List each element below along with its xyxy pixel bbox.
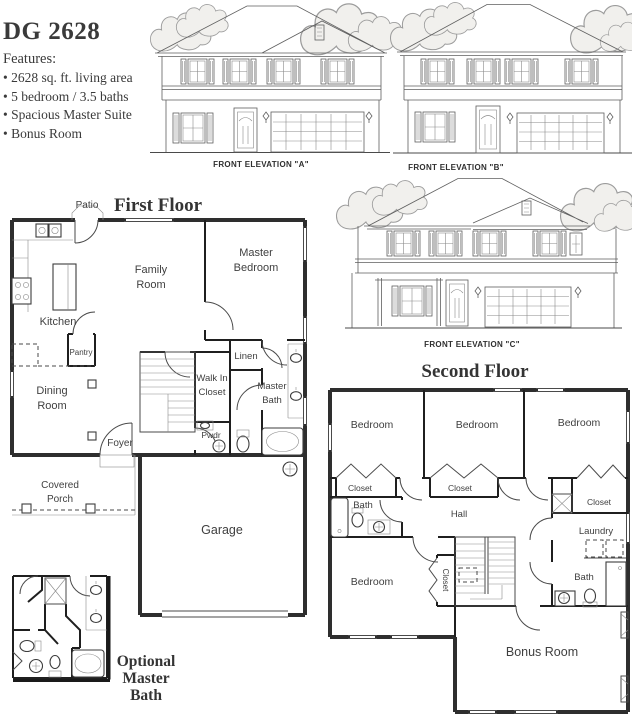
toilet xyxy=(237,430,249,452)
caption-line: Master xyxy=(122,670,169,687)
kitchen-island xyxy=(53,264,76,310)
bath-label: Bath xyxy=(353,500,373,511)
front-elevation-a: FRONT ELEVATION "A" xyxy=(150,4,403,169)
patio-label: Patio xyxy=(76,200,99,211)
interior-walls xyxy=(13,576,80,678)
bedroom-label: Bedroom xyxy=(351,576,394,588)
foyer-label: Foyer xyxy=(107,438,133,449)
first-floor-labels: Patio Family Room Master Bedroom Kitchen… xyxy=(36,200,286,537)
second-floor-plan: Bedroom Bedroom Bedroom Bedroom Closet C… xyxy=(329,389,630,714)
master-bath-label: Master xyxy=(257,381,286,392)
hall-label: Hall xyxy=(451,509,467,520)
second-floor-heading: Second Floor xyxy=(421,361,529,382)
front-elevation-b: FRONT ELEVATION "B" xyxy=(390,2,632,172)
dining-opening-posts xyxy=(88,380,96,440)
floor-plan-sheet: DG 2628 Features: • 2628 sq. ft. living … xyxy=(0,0,632,720)
front-elevation-c: FRONT ELEVATION "C" xyxy=(336,179,632,350)
bedroom-label: Bedroom xyxy=(558,417,601,429)
dining-room-label: Room xyxy=(37,400,66,412)
patio xyxy=(72,206,103,243)
toilet xyxy=(20,641,41,652)
closet-label: Closet xyxy=(587,497,612,507)
garage-door xyxy=(271,112,364,152)
bedroom-label: Bedroom xyxy=(456,419,499,431)
covered-porch-label: Covered xyxy=(41,480,79,491)
bathtub xyxy=(262,428,303,455)
trees xyxy=(390,2,632,52)
optional-master-bath-plan: Optional Master Bath xyxy=(13,576,176,704)
kitchen-label: Kitchen xyxy=(40,316,77,328)
walk-in-closet-label: Closet xyxy=(199,387,226,398)
family-room-label: Family xyxy=(135,264,168,276)
garage-door xyxy=(485,287,571,327)
pedestal-sink xyxy=(49,656,61,678)
front-door xyxy=(476,106,500,153)
front-elevation-a-caption: FRONT ELEVATION "A" xyxy=(213,160,309,169)
family-room-label: Room xyxy=(136,279,165,291)
caption-line: Bath xyxy=(130,687,162,704)
garage-label: Garage xyxy=(201,523,243,537)
master-bedroom-label: Master xyxy=(239,247,273,259)
bath2-fixtures xyxy=(555,562,626,607)
laundry-label: Laundry xyxy=(579,526,614,537)
water-heater-icon xyxy=(283,462,297,476)
linen-label: Linen xyxy=(234,351,257,362)
refrigerator xyxy=(12,344,38,366)
covered-porch-label: Porch xyxy=(47,494,73,505)
door-arcs xyxy=(380,478,552,630)
pantry-label: Pantry xyxy=(69,348,92,357)
plan-drawing: FRONT ELEVATION "A" xyxy=(0,0,632,720)
kitchen-sink xyxy=(36,224,61,237)
bonus-room-label: Bonus Room xyxy=(506,645,578,659)
trees xyxy=(150,4,403,55)
front-elevation-b-caption: FRONT ELEVATION "B" xyxy=(408,163,504,172)
dining-room-label: Dining xyxy=(36,385,67,397)
front-door xyxy=(234,108,257,152)
stove xyxy=(12,278,31,304)
closet-label: Closet xyxy=(348,483,373,493)
master-bedroom-label: Bedroom xyxy=(234,262,279,274)
closet-label: Closet xyxy=(441,569,450,592)
front-door xyxy=(446,280,468,326)
first-floor-plan: Patio Family Room Master Bedroom Kitchen… xyxy=(11,200,307,617)
garage-door xyxy=(517,113,604,153)
round-sink xyxy=(30,660,43,673)
vanity-sinks xyxy=(86,576,107,630)
stairs xyxy=(455,537,515,606)
front-elevation-c-caption: FRONT ELEVATION "C" xyxy=(424,340,520,349)
shower xyxy=(45,578,66,604)
bathtub xyxy=(72,650,104,677)
caption-line: Optional xyxy=(117,653,176,670)
first-floor-heading: First Floor xyxy=(114,195,203,216)
bedroom-label: Bedroom xyxy=(351,419,394,431)
chase-box xyxy=(552,494,572,513)
optional-bath-caption: Optional Master Bath xyxy=(117,653,176,704)
bath-label: Bath xyxy=(574,572,594,583)
closet-label: Closet xyxy=(448,483,473,493)
laundry-fixtures xyxy=(584,540,626,558)
kitchen-fixtures xyxy=(12,224,95,366)
master-bath-label: Bath xyxy=(262,395,282,406)
powder-label: Pwdr xyxy=(201,430,221,440)
garage-door-opening xyxy=(162,611,288,617)
walk-in-closet-label: Walk In xyxy=(196,373,227,384)
